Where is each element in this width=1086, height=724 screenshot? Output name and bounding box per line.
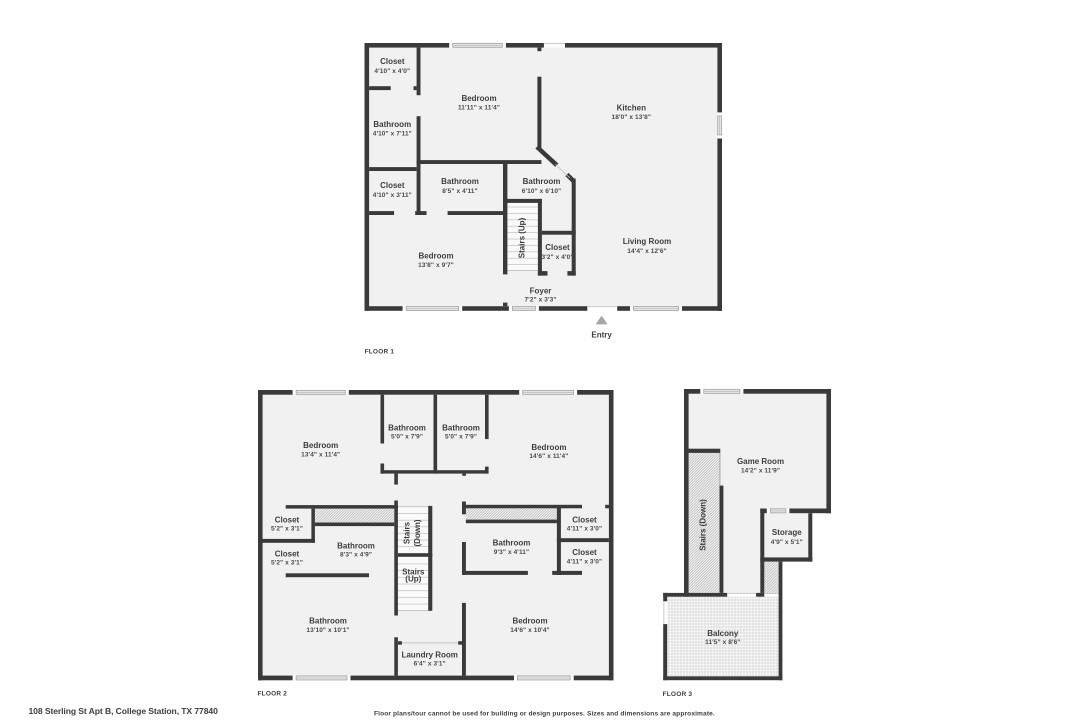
svg-text:Storage: Storage bbox=[772, 528, 802, 537]
svg-text:Bathroom: Bathroom bbox=[388, 423, 426, 432]
svg-text:18'0" x 13'8": 18'0" x 13'8" bbox=[612, 114, 651, 121]
svg-text:FLOOR 2: FLOOR 2 bbox=[258, 690, 288, 697]
svg-text:4'9" x 5'1": 4'9" x 5'1" bbox=[771, 539, 803, 546]
svg-text:14'4" x 12'6": 14'4" x 12'6" bbox=[627, 248, 666, 255]
svg-text:Bedroom: Bedroom bbox=[512, 617, 547, 626]
svg-text:(Up): (Up) bbox=[405, 574, 421, 583]
svg-text:11'5" x 8'6": 11'5" x 8'6" bbox=[705, 639, 740, 646]
svg-text:(Down): (Down) bbox=[413, 519, 422, 546]
svg-text:14'6" x 10'4": 14'6" x 10'4" bbox=[510, 627, 549, 634]
svg-text:Closet: Closet bbox=[572, 515, 597, 524]
svg-text:13'4" x 11'4": 13'4" x 11'4" bbox=[301, 451, 340, 458]
svg-text:Closet: Closet bbox=[380, 181, 405, 190]
svg-text:5'0" x 7'9": 5'0" x 7'9" bbox=[391, 434, 423, 441]
svg-text:Balcony: Balcony bbox=[707, 629, 739, 638]
svg-text:Closet: Closet bbox=[275, 550, 300, 559]
svg-text:FLOOR 1: FLOOR 1 bbox=[365, 349, 395, 356]
svg-text:Foyer: Foyer bbox=[530, 287, 552, 296]
svg-text:4'11" x 3'0": 4'11" x 3'0" bbox=[567, 525, 602, 532]
svg-text:5'2" x 3'1": 5'2" x 3'1" bbox=[271, 560, 303, 567]
svg-text:Bathroom: Bathroom bbox=[442, 423, 480, 432]
svg-text:Bedroom: Bedroom bbox=[531, 443, 566, 452]
svg-text:4'10" x 3'11": 4'10" x 3'11" bbox=[373, 192, 412, 199]
svg-text:Bathroom: Bathroom bbox=[309, 617, 347, 626]
svg-text:4'11" x 3'0": 4'11" x 3'0" bbox=[567, 559, 602, 566]
svg-text:3'2" x 4'0": 3'2" x 4'0" bbox=[541, 254, 573, 261]
svg-text:Living Room: Living Room bbox=[623, 237, 671, 246]
svg-text:6'10" x 6'10": 6'10" x 6'10" bbox=[522, 188, 561, 195]
svg-text:6'4" x 3'1": 6'4" x 3'1" bbox=[414, 661, 446, 668]
svg-text:Bedroom: Bedroom bbox=[461, 94, 496, 103]
svg-text:Laundry Room: Laundry Room bbox=[401, 650, 457, 659]
svg-text:108 Sterling St Apt B, College: 108 Sterling St Apt B, College Station, … bbox=[29, 706, 219, 716]
svg-text:14'6" x 11'4": 14'6" x 11'4" bbox=[529, 453, 568, 460]
svg-text:14'2" x 11'9": 14'2" x 11'9" bbox=[741, 468, 780, 475]
svg-text:FLOOR 3: FLOOR 3 bbox=[663, 691, 693, 698]
svg-text:Entry: Entry bbox=[591, 330, 612, 339]
svg-text:Bedroom: Bedroom bbox=[418, 252, 453, 261]
svg-text:Closet: Closet bbox=[380, 57, 405, 66]
svg-text:4'10" x 4'0": 4'10" x 4'0" bbox=[374, 68, 410, 75]
svg-text:8'5" x 4'11": 8'5" x 4'11" bbox=[442, 188, 477, 195]
svg-text:13'8" x 9'7": 13'8" x 9'7" bbox=[418, 262, 454, 269]
svg-text:8'3" x 4'9": 8'3" x 4'9" bbox=[340, 552, 372, 559]
svg-text:Bathroom: Bathroom bbox=[373, 120, 411, 129]
svg-text:13'10" x 10'1": 13'10" x 10'1" bbox=[306, 627, 349, 634]
svg-text:Bathroom: Bathroom bbox=[523, 177, 561, 186]
svg-text:Bathroom: Bathroom bbox=[337, 541, 375, 550]
svg-text:Bedroom: Bedroom bbox=[303, 441, 338, 450]
svg-text:Floor plans/tour cannot be use: Floor plans/tour cannot be used for buil… bbox=[374, 710, 715, 717]
svg-text:Stairs (Up): Stairs (Up) bbox=[518, 217, 527, 258]
svg-text:Bathroom: Bathroom bbox=[493, 539, 531, 548]
svg-text:11'11" x 11'4": 11'11" x 11'4" bbox=[458, 105, 500, 112]
svg-text:7'2" x 3'3": 7'2" x 3'3" bbox=[524, 297, 556, 304]
svg-text:Stairs (Down): Stairs (Down) bbox=[699, 499, 708, 551]
svg-text:Closet: Closet bbox=[545, 243, 570, 252]
svg-text:Stairs: Stairs bbox=[402, 521, 411, 544]
svg-text:Kitchen: Kitchen bbox=[617, 104, 646, 113]
svg-text:5'0" x 7'9": 5'0" x 7'9" bbox=[445, 434, 477, 441]
svg-text:Closet: Closet bbox=[572, 548, 597, 557]
svg-text:9'3" x 4'11": 9'3" x 4'11" bbox=[494, 549, 529, 556]
svg-text:Closet: Closet bbox=[275, 515, 300, 524]
svg-text:5'2" x 3'1": 5'2" x 3'1" bbox=[271, 525, 303, 532]
svg-text:4'10" x 7'11": 4'10" x 7'11" bbox=[373, 131, 412, 138]
svg-text:Bathroom: Bathroom bbox=[441, 177, 479, 186]
svg-text:Game Room: Game Room bbox=[737, 457, 784, 466]
